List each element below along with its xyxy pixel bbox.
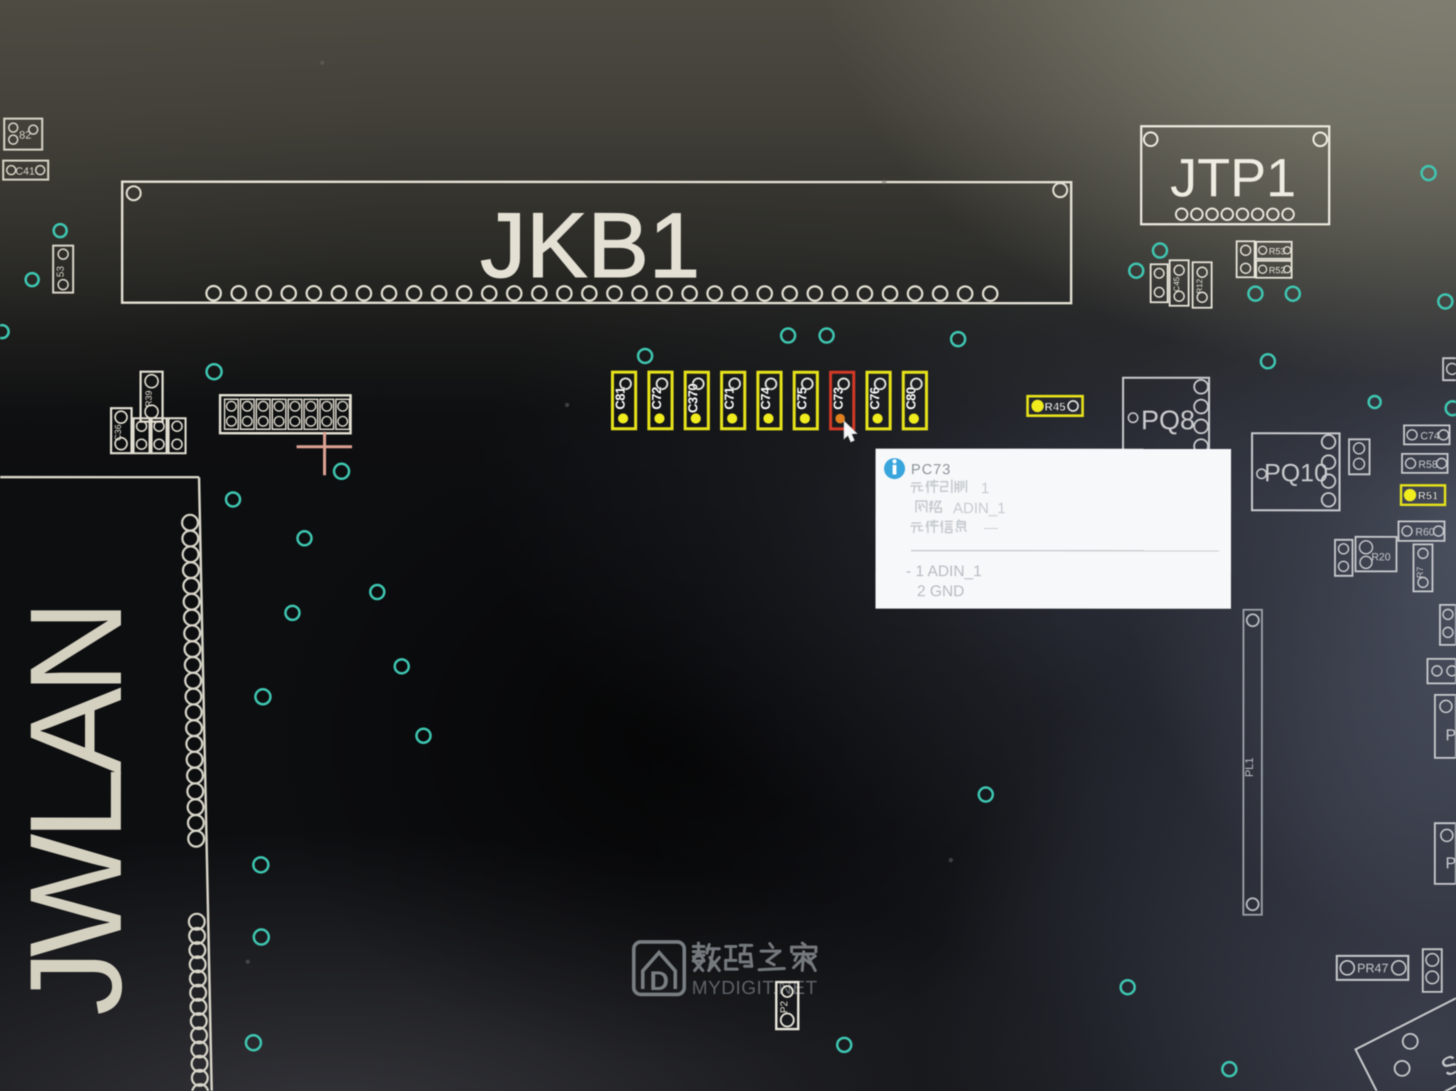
svg-text:JWLAN: JWLAN — [2, 607, 149, 1016]
svg-text:ADIN_1: ADIN_1 — [953, 500, 1006, 517]
svg-text:2 GND: 2 GND — [917, 583, 964, 600]
svg-text:1: 1 — [981, 480, 989, 497]
svg-text:JTP1: JTP1 — [1170, 148, 1296, 208]
svg-text:R7: R7 — [1415, 567, 1425, 579]
svg-text:PR47: PR47 — [1357, 961, 1388, 975]
svg-text:R51: R51 — [1418, 490, 1438, 502]
svg-text:C81: C81 — [613, 387, 628, 410]
svg-text:R58: R58 — [1418, 459, 1437, 471]
svg-text:PQ8: PQ8 — [1141, 405, 1195, 435]
svg-text:C75: C75 — [794, 387, 809, 410]
svg-text:R52: R52 — [1269, 265, 1286, 275]
svg-text:C80: C80 — [903, 387, 918, 410]
svg-text:C72: C72 — [649, 387, 664, 410]
svg-text:C76: C76 — [867, 387, 882, 410]
svg-text:PC73: PC73 — [911, 462, 951, 478]
svg-text:R53: R53 — [1269, 246, 1286, 256]
svg-text:JKB1: JKB1 — [480, 195, 700, 297]
svg-text:P: P — [1446, 727, 1456, 744]
svg-text:S: S — [1436, 1048, 1456, 1083]
svg-text:R45: R45 — [1045, 402, 1067, 414]
svg-text:- 1 ADIN_1: - 1 ADIN_1 — [906, 563, 982, 580]
svg-text:C41: C41 — [16, 166, 35, 178]
svg-text:53: 53 — [56, 266, 67, 278]
svg-text:C45: C45 — [1172, 276, 1181, 291]
svg-text:C74: C74 — [758, 386, 773, 410]
svg-text:C71: C71 — [722, 387, 737, 410]
svg-text:C370: C370 — [685, 384, 700, 413]
svg-text:R20: R20 — [1371, 551, 1390, 563]
svg-text:PQ10: PQ10 — [1264, 459, 1328, 487]
svg-text:PL1: PL1 — [1244, 757, 1256, 777]
svg-text:C73: C73 — [831, 387, 846, 410]
svg-text:D: D — [650, 966, 670, 996]
svg-text:R12: R12 — [1195, 278, 1204, 293]
svg-text:P2: P2 — [779, 1000, 790, 1013]
svg-text:P: P — [1445, 855, 1456, 872]
svg-text:C74: C74 — [1420, 430, 1439, 442]
svg-text:R60: R60 — [1415, 526, 1434, 538]
svg-text:—: — — [984, 519, 998, 535]
